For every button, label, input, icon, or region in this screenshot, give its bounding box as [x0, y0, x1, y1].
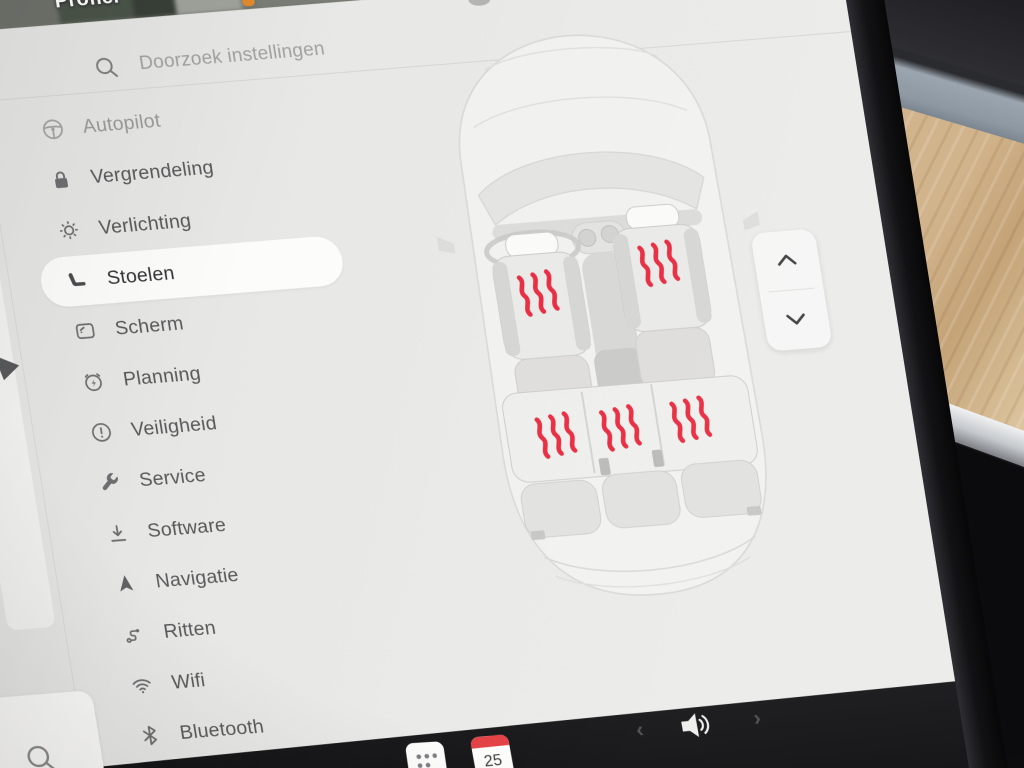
chevron-down-icon	[781, 309, 812, 329]
calendar-app-icon[interactable]: 25	[470, 734, 516, 768]
phone-app-icon[interactable]	[405, 741, 450, 768]
chevron-up-icon	[771, 250, 802, 270]
display-icon	[71, 319, 99, 345]
next-track-icon[interactable]: ›	[751, 705, 763, 731]
search-icon	[92, 54, 120, 80]
download-icon	[104, 521, 132, 547]
steering-wheel-icon	[39, 116, 67, 142]
search-icon	[22, 741, 61, 768]
left-mirror	[437, 236, 456, 255]
scroll-up-button[interactable]	[750, 229, 823, 292]
volume-icon[interactable]	[678, 710, 715, 741]
right-mirror	[742, 211, 761, 230]
settings-search[interactable]: Doorzoek instellingen	[91, 31, 328, 85]
search-placeholder: Doorzoek instellingen	[138, 38, 327, 75]
tesla-touchscreen: Profiel Doorzoek instellingen	[0, 0, 1024, 768]
route-icon	[120, 622, 148, 648]
wrench-icon	[96, 470, 124, 496]
calendar-day: 25	[472, 745, 515, 768]
alarm-clock-icon	[80, 369, 108, 395]
lock-icon	[47, 167, 75, 193]
settings-content: Doorzoek instellingen Autopilot Vergrend…	[0, 0, 998, 768]
dashboard-photo: Profiel Doorzoek instellingen	[0, 0, 1024, 768]
wifi-icon	[128, 672, 156, 698]
navigation-arrow-icon	[112, 571, 140, 597]
bluetooth-icon	[136, 723, 164, 749]
seat-icon	[63, 268, 91, 294]
screen-surface: Profiel Doorzoek instellingen	[0, 0, 998, 768]
scroll-down-button[interactable]	[760, 288, 833, 351]
previous-track-icon[interactable]: ‹	[634, 717, 646, 743]
brightness-icon	[55, 217, 83, 243]
avatar-partial-icon	[467, 0, 491, 7]
alert-circle-icon	[88, 420, 116, 446]
